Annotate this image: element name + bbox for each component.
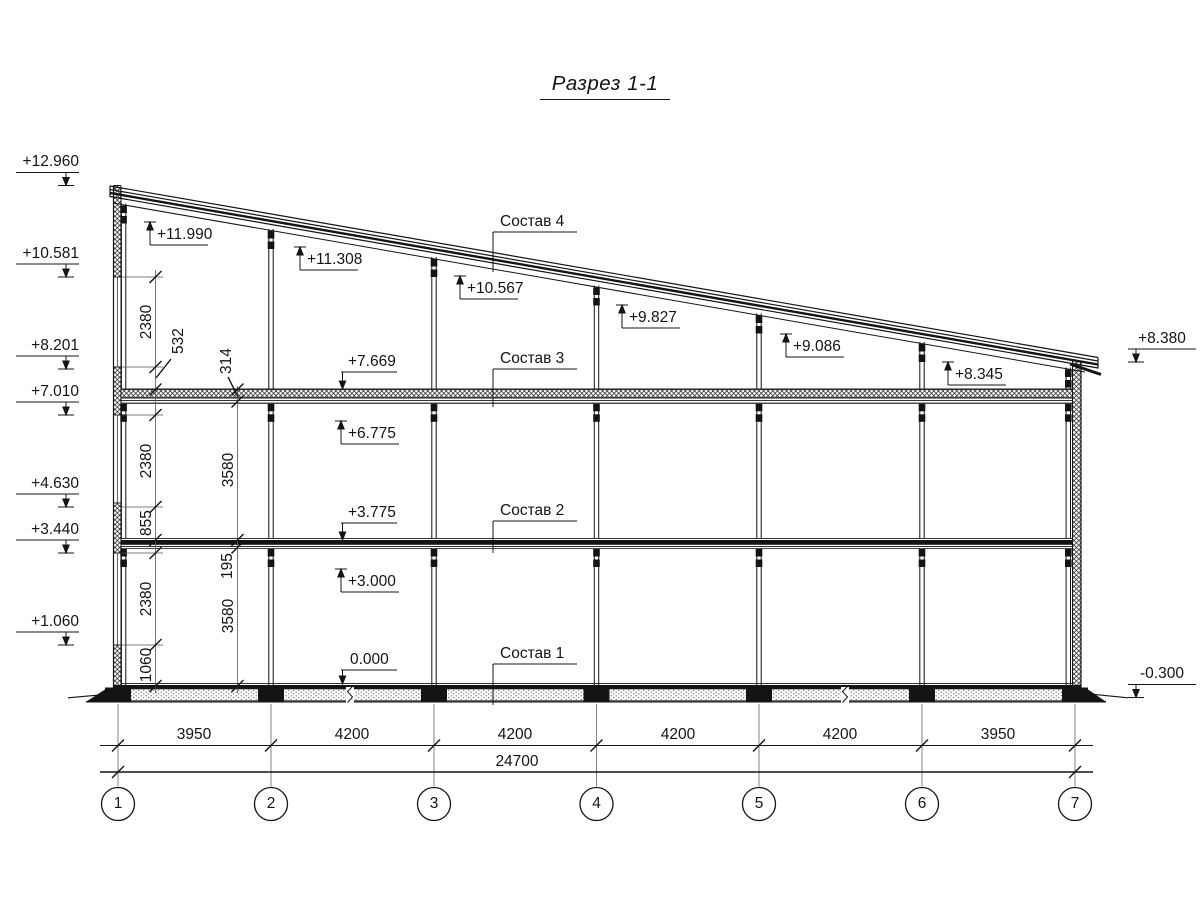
elevation-marks-left [16, 173, 79, 646]
elevation-label-left-4630: +4.630 [8, 475, 79, 493]
elevation-label-right-8380: +8.380 [1128, 330, 1196, 348]
roof [110, 186, 1101, 375]
elevation-label-10567: +10.567 [467, 280, 523, 298]
elevation-label-left-12960: +12.960 [8, 153, 79, 171]
hdim-4200-c: 4200 [648, 726, 708, 744]
columns [121, 204, 1070, 687]
grid-axis-1: 1 [101, 795, 135, 813]
floor-slab-3 [121, 389, 1073, 405]
grid-axis-2: 2 [254, 795, 288, 813]
hdim-total-24700: 24700 [482, 753, 552, 771]
elevation-label-6775: +6.775 [348, 425, 396, 443]
elevation-label-left-7010: +7.010 [8, 383, 79, 401]
column-top-joints [120, 206, 1071, 388]
elevation-label-9827: +9.827 [629, 309, 677, 327]
right-wall [1073, 361, 1082, 702]
vdim-195: 195 [220, 553, 236, 579]
hdim-3950-b: 3950 [968, 726, 1028, 744]
vdim-2380-a: 2380 [139, 305, 155, 339]
elevation-label-11990: +11.990 [157, 226, 212, 244]
elevation-label-7669: +7.669 [348, 353, 396, 371]
hdim-4200-b: 4200 [485, 726, 545, 744]
drawing-title: Разрез 1-1 [540, 72, 670, 100]
vdim-3580-b: 3580 [221, 599, 237, 633]
vdim-314: 314 [219, 348, 235, 374]
layer-callouts [493, 232, 577, 705]
elevation-label-3000: +3.000 [348, 573, 396, 591]
elevation-marks-interior-down [339, 372, 397, 684]
layer-label-3: Состав 3 [500, 350, 564, 368]
elevation-label-0000: 0.000 [350, 651, 389, 669]
section-linework [0, 0, 1200, 900]
elevation-label-11308: +11.308 [307, 251, 362, 269]
layer-label-4: Состав 4 [500, 213, 564, 231]
vertical-dim-chain-inner-ticks [228, 377, 244, 692]
drawing-sheet: Разрез 1-1 +12.960 +10.581 +8.201 +7.010… [0, 0, 1200, 900]
ground-slab [68, 684, 1128, 703]
vdim-1060: 1060 [139, 648, 155, 682]
vdim-2380-c: 2380 [139, 582, 155, 616]
vdim-3580-a: 3580 [221, 453, 237, 487]
layer-label-1: Состав 1 [500, 645, 564, 663]
grid-axis-5: 5 [742, 795, 776, 813]
layer-label-2: Состав 2 [500, 502, 564, 520]
elevation-label-right-0300: -0.300 [1128, 665, 1196, 683]
elevation-label-left-8201: +8.201 [8, 337, 79, 355]
elevation-label-9086: +9.086 [793, 338, 841, 356]
grid-axis-6: 6 [905, 795, 939, 813]
elevation-label-8345: +8.345 [955, 366, 1003, 384]
elevation-label-left-1060: +1.060 [8, 613, 79, 631]
vdim-2380-b: 2380 [139, 444, 155, 478]
hdim-4200-d: 4200 [810, 726, 870, 744]
hdim-4200-a: 4200 [322, 726, 382, 744]
left-wall [114, 186, 122, 703]
grid-axis-3: 3 [417, 795, 451, 813]
vdim-532: 532 [171, 328, 187, 354]
elevation-marks-right [1128, 349, 1196, 698]
grid-axis-7: 7 [1058, 795, 1092, 813]
hdim-3950-a: 3950 [164, 726, 224, 744]
elevation-label-left-3440: +3.440 [8, 521, 79, 539]
elevation-label-3775: +3.775 [348, 504, 396, 522]
floor-slab-2 [121, 538, 1073, 549]
elevation-label-left-10581: +10.581 [8, 245, 79, 263]
grid-axis-4: 4 [580, 795, 614, 813]
vdim-855: 855 [139, 510, 155, 536]
